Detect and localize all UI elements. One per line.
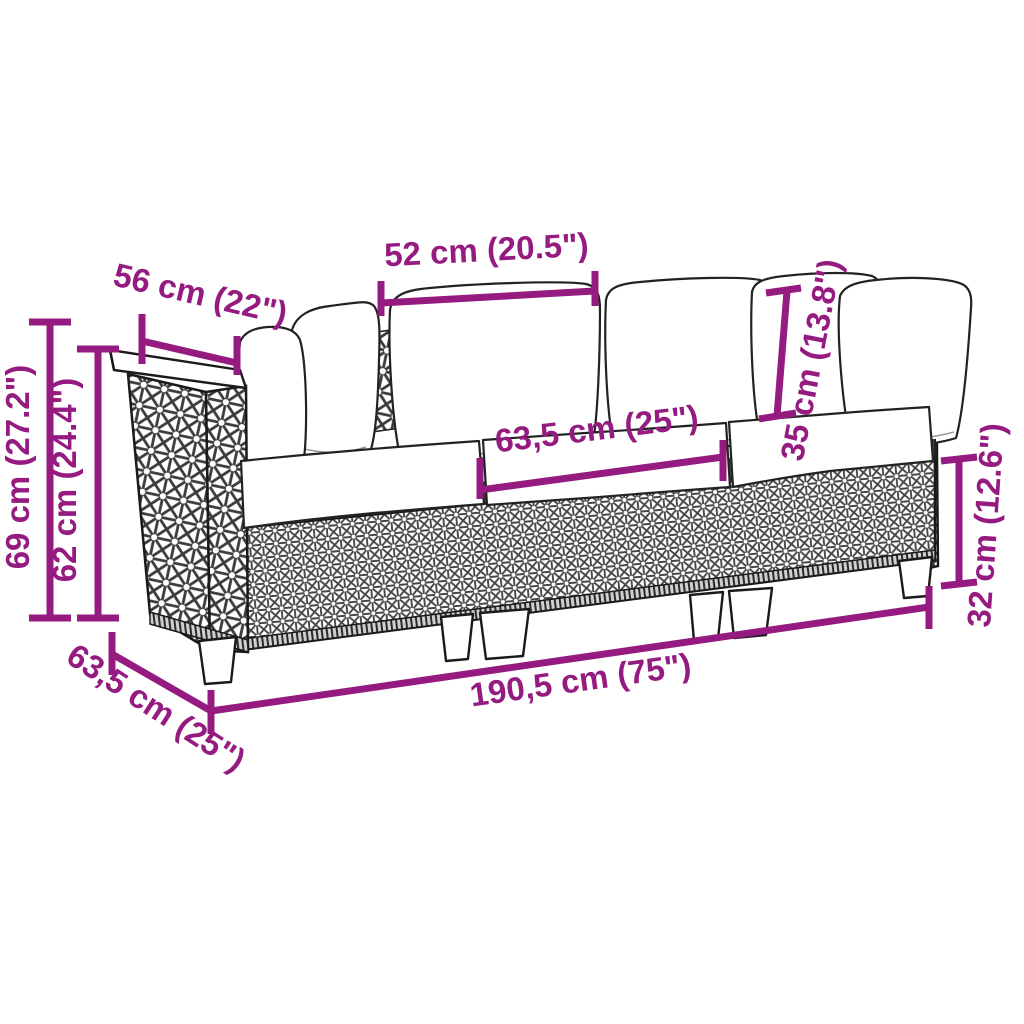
diagram-canvas: 56 cm (22") 52 cm (20.5") 35 cm (13.8"): [0, 0, 1024, 1024]
dimension-label: 52 cm (20.5"): [383, 226, 589, 274]
left-armrest-front-panel: [206, 386, 248, 652]
dimension-label: 32 cm (12.6"): [960, 422, 1011, 629]
dimension-label: 62 cm (24.4"): [46, 378, 83, 583]
left-armrest-side-panel: [128, 374, 210, 650]
dimension-label: 56 cm (22"): [110, 256, 291, 332]
dimension-label: 69 cm (27.2"): [0, 365, 36, 570]
leg: [690, 592, 723, 641]
dimension-diagram: 56 cm (22") 52 cm (20.5") 35 cm (13.8"): [0, 0, 1024, 1024]
leg: [441, 614, 473, 661]
leg: [199, 637, 236, 684]
left-armrest: [110, 350, 248, 652]
leg: [480, 609, 529, 659]
dim-seat-height: 32 cm (12.6"): [941, 422, 1011, 629]
dim-armrest-height: 62 cm (24.4"): [46, 349, 119, 618]
